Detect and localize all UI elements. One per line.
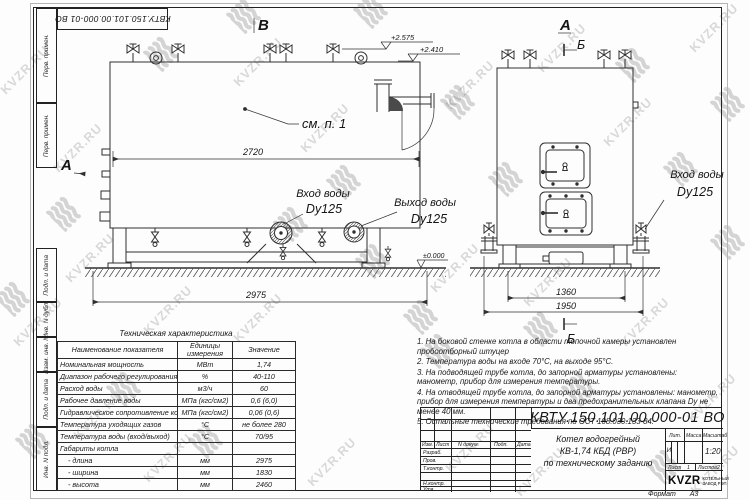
tb-header-podp: Подп. (494, 442, 508, 448)
tech-row: Температура уходящих газов°Сне более 280 (58, 419, 296, 431)
front-inlet-label: Вход воды Dy125 (284, 188, 350, 224)
svg-text:Вход воды: Вход воды (670, 169, 723, 181)
svg-text:см. п. 1: см. п. 1 (302, 116, 346, 131)
svg-text:Dy125: Dy125 (411, 212, 447, 226)
view-marker-a-left: А (60, 157, 72, 174)
tech-table-title: Техническая характеристика (57, 329, 295, 341)
tech-row: - ширинамм1830 (58, 467, 296, 479)
tb-lit-value: И (667, 447, 672, 454)
margin-box-inv-podl: Инв. N подл. (36, 427, 57, 491)
tech-row: Рабочее давление водыМПа (кгс/см2)0,6 (6… (58, 395, 296, 407)
tech-header-units: Единицы измерения (178, 342, 233, 359)
elevation-boiler-top: +2.410 (398, 45, 460, 61)
elevation-ground: ±0.000 (417, 253, 448, 268)
tb-header-izm: Изм. (422, 442, 433, 448)
product-line-1: Котел водогрейный (531, 434, 665, 446)
product-line-3: по техническому заданию (531, 458, 665, 470)
section-marker-b-top: Б (564, 38, 585, 56)
upper-door (540, 143, 590, 188)
tb-lit-label: Лит. (669, 433, 681, 439)
svg-text:1360: 1360 (556, 287, 576, 297)
svg-text:2975: 2975 (245, 290, 267, 300)
format-value: А3 (690, 491, 699, 498)
tech-header-value: Значение (233, 342, 296, 359)
tech-table: Наименование показателя Единицы измерени… (57, 341, 296, 491)
side-supports (499, 245, 631, 268)
tech-row: Температура воды (вход/выход)°С70/95 (58, 431, 296, 443)
margin-label: Взам. инв. N (43, 336, 50, 374)
tech-row: Диапазон рабочего регулирования%40-110 (58, 371, 296, 383)
kvzr-logo-subtext: КОТЕЛЬНЫЙ ЗАВОД РЭП (703, 476, 729, 487)
margin-box-podp-data-2: Подп. и дата (36, 372, 57, 427)
stamp-designation-text: КВТУ.150.101.00.000-01 ВО (55, 14, 171, 24)
tb-role-tkontr: Т.контр. (423, 466, 444, 472)
tb-mass-label: Масса (686, 433, 701, 439)
front-inlet-flange (270, 222, 292, 244)
tb-header-docum: N докум. (458, 442, 479, 448)
format-strip: ФорматА3 (648, 491, 712, 498)
view-marker-a-top: А (559, 17, 571, 34)
tb-scale-label: Масштаб (703, 433, 727, 439)
tb-role-utv: Утв. (423, 487, 435, 493)
note-item: 2. Температура воды на входе 70°С, на вы… (417, 357, 720, 367)
kvzr-logo-text: KVZR (668, 475, 701, 487)
svg-text:+2.410: +2.410 (420, 45, 444, 54)
tech-row: Номинальная мощностьМВт1,74 (58, 359, 296, 371)
tb-role-razrab: Разраб. (423, 450, 442, 456)
margin-box-inv-dubl: Инв. N дубл. (36, 302, 57, 337)
svg-text:±0.000: ±0.000 (423, 253, 444, 260)
svg-text:Dy125: Dy125 (306, 202, 342, 216)
margin-label: Подп. и дата (43, 379, 50, 420)
margin-box-perv-primen-2: Перв. примен. (36, 103, 57, 168)
drawing-sheet: KVZR.RUKVZR.RUKVZR.RUKVZR.RUKVZR.RUKVZR.… (0, 0, 750, 500)
tech-header-name: Наименование показателя (58, 342, 178, 359)
tb-header-data: Дата (517, 442, 531, 448)
format-label: Формат (648, 491, 676, 498)
dim-front-body-length: 2720 (113, 147, 419, 167)
front-outlet-flange (344, 222, 364, 242)
margin-label: Инв. N дубл. (43, 301, 50, 339)
note-item: 1. На боковой стенке котла в области топ… (417, 337, 720, 356)
lower-door (540, 192, 592, 235)
flue-pipe-elbow (374, 80, 434, 150)
svg-text:Dy125: Dy125 (677, 185, 713, 199)
tech-row: Гидравлическое сопротивление котлаМПа (к… (58, 407, 296, 419)
margin-label: Подп. и дата (43, 255, 50, 296)
side-view: А Б (470, 17, 724, 346)
product-name: Котел водогрейный КВ-1,74 КБД (РВР) по т… (531, 429, 665, 492)
title-block: КВТУ.150.101.00.000-01 ВО Изм. Лист N до… (420, 407, 722, 491)
margin-label: Перв. примен. (43, 34, 50, 77)
kvzr-logo: KVZR КОТЕЛЬНЫЙ ЗАВОД РЭП (665, 470, 723, 492)
margin-box-vzam-inv: Взам. инв. N (36, 337, 57, 372)
svg-text:2720: 2720 (242, 147, 263, 157)
view-marker-v: В (258, 17, 269, 34)
tech-row: Расход водым3/ч60 (58, 383, 296, 395)
tb-scale-value: 1:20 (705, 447, 721, 456)
tech-row: - высотамм2460 (58, 479, 296, 491)
callout-see-note-1: см. п. 1 (244, 108, 347, 131)
svg-text:1950: 1950 (556, 301, 576, 311)
tech-row: - длинамм2975 (58, 455, 296, 467)
side-left-nozzle (481, 223, 497, 253)
svg-text:Б: Б (577, 38, 585, 52)
title-block-designation: КВТУ.150.101.00.000-01 ВО (531, 408, 723, 429)
side-inlet-label: Вход воды Dy125 (645, 169, 724, 229)
tb-role-prov: Пров. (423, 458, 437, 464)
tech-row: Габариты котла (58, 443, 296, 455)
svg-text:Выход воды: Выход воды (394, 197, 456, 209)
svg-text:+2.575: +2.575 (391, 33, 415, 42)
tech-characteristics: Техническая характеристика Наименование … (57, 329, 295, 491)
tb-header-list: Лист (436, 442, 449, 448)
front-outlet-label: Выход воды Dy125 (361, 197, 456, 226)
side-right-nozzle (633, 223, 649, 253)
note-item: 3. На подводящей трубе котла, до запорно… (417, 368, 720, 387)
product-line-2: КВ-1,74 КБД (РВР) (531, 446, 665, 458)
margin-box-podp-data-1: Подп. и дата (36, 248, 57, 302)
top-designation-stamp: КВТУ.150.101.00.000-01 ВО (57, 8, 168, 30)
margin-label: Перв. примен. (43, 114, 50, 157)
margin-label: Инв. N подл. (43, 440, 50, 478)
svg-text:Вход воды: Вход воды (296, 188, 349, 200)
front-view: В +2.575 +2.410 (60, 17, 460, 306)
